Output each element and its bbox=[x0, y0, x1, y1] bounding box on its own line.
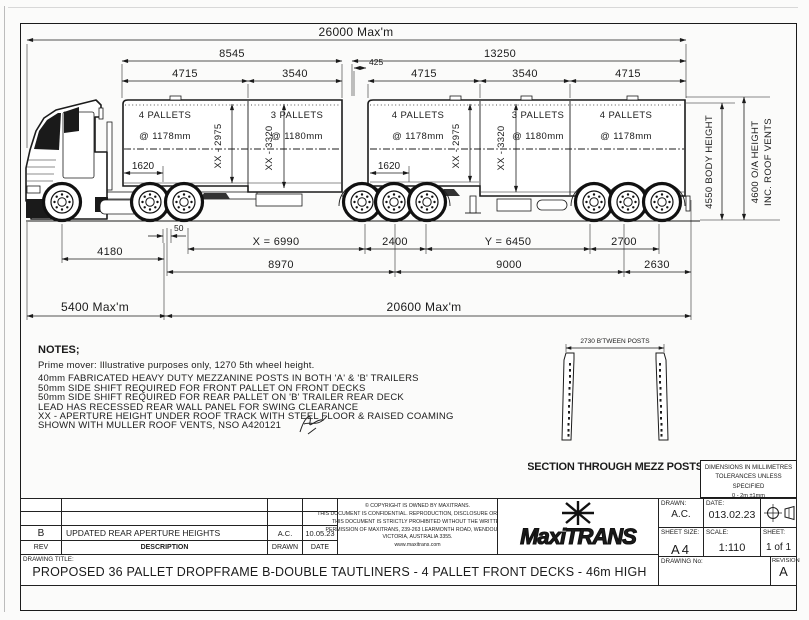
dim-2700: 2700 bbox=[611, 236, 637, 248]
rev-table-cell bbox=[20, 498, 62, 512]
section-caption: SECTION THROUGH MEZZ POSTS bbox=[528, 461, 703, 473]
logo-box: MaxiTRANS bbox=[497, 498, 659, 555]
drawing-title: PROPOSED 36 PALLET DROPFRAME B-DOUBLE TA… bbox=[32, 565, 646, 579]
rev-value: B bbox=[20, 525, 62, 541]
dim-b-length: 13250 bbox=[484, 48, 516, 60]
handwritten-mark bbox=[296, 410, 332, 436]
mezz-posts bbox=[562, 353, 668, 440]
pallet-pitch-a1: @ 1178mm bbox=[139, 131, 191, 142]
dim-oa-height-2: INC. ROOF VENTS bbox=[763, 118, 774, 206]
air-tank bbox=[537, 200, 567, 210]
dim-x: X = 6990 bbox=[253, 236, 300, 248]
dim-body-height: 4550 BODY HEIGHT bbox=[704, 115, 715, 209]
pallet-label-b2: 3 PALLETS bbox=[512, 110, 565, 121]
notes-heading: NOTES; bbox=[38, 344, 528, 356]
notes-block: NOTES; Prime mover: Illustrative purpose… bbox=[38, 344, 528, 431]
dim-b-rear: 4715 bbox=[615, 68, 641, 80]
projection-cell bbox=[760, 498, 797, 528]
scale-label: SCALE: bbox=[706, 529, 760, 536]
pallet-pitch-b1: @ 1178mm bbox=[392, 131, 444, 142]
date-cell: DATE: 013.02.23 bbox=[703, 498, 761, 528]
sheet-value: 1 of 1 bbox=[761, 542, 796, 553]
scale-cell: SCALE: 1:110 bbox=[703, 527, 761, 557]
rev-header-drawn: DRAWN bbox=[267, 540, 303, 555]
pallet-pitch-b3: @ 1178mm bbox=[600, 131, 652, 142]
date-value: 013.02.23 bbox=[704, 509, 760, 521]
drawing-no-label: DRAWING No: bbox=[661, 558, 703, 565]
aperture-a2: XX - 3320 bbox=[264, 126, 275, 171]
wheels bbox=[44, 184, 681, 221]
dim-2400: 2400 bbox=[382, 236, 408, 248]
logo-text: MaxiTRANS bbox=[520, 524, 637, 549]
sheet-label: SHEET: bbox=[763, 529, 796, 536]
dim-b-wheelbase: 9000 bbox=[496, 259, 522, 271]
dim-gap-425: 425 bbox=[369, 57, 383, 67]
main-drawing: 26000 Max'm 8545 13250 425 4715 3540 471… bbox=[0, 0, 809, 332]
sheet-size-cell: SHEET SIZE: A4 bbox=[658, 527, 704, 557]
tolerance-box: DIMENSIONS IN MILLIMETRES TOLERANCES UNL… bbox=[700, 460, 797, 498]
dim-b-mid: 3540 bbox=[512, 68, 538, 80]
rev-table-cell bbox=[61, 511, 268, 526]
dim-a-front: 4715 bbox=[172, 68, 198, 80]
rev-table-cell bbox=[302, 498, 338, 512]
dim-steer-to-drive: 4180 bbox=[97, 246, 123, 258]
dim-fifty: 50 bbox=[174, 223, 184, 233]
rev-description: UPDATED REAR APERTURE HEIGHTS bbox=[61, 525, 268, 541]
pallet-label-b3: 4 PALLETS bbox=[600, 110, 653, 121]
drawing-title-label: DRAWING TITLE: bbox=[23, 556, 74, 563]
tolerance-line: DIMENSIONS IN MILLIMETRES bbox=[701, 464, 796, 473]
toolbox bbox=[497, 199, 531, 211]
dim-lead-length: 8545 bbox=[219, 48, 245, 60]
rear-underrun bbox=[686, 196, 690, 211]
copyright-line: www.maxitrans.com bbox=[394, 542, 440, 550]
drawing-title-bar: DRAWING TITLE: PROPOSED 36 PALLET DROPFR… bbox=[20, 554, 659, 586]
copyright-box: © COPYRIGHT IS OWNED BY MAXITRANS. THIS … bbox=[337, 498, 498, 555]
dim-oa-height-1: 4600 O/A HEIGHT bbox=[750, 121, 761, 204]
note-line: Prime mover: Illustrative purposes only,… bbox=[38, 361, 528, 370]
copyright-line: © COPYRIGHT IS OWNED BY MAXITRANS. bbox=[365, 503, 470, 511]
aperture-b1: XX - 2975 bbox=[451, 124, 462, 169]
sheet-size-value: A4 bbox=[659, 542, 703, 557]
drawing-sheet: { "sheet": { "dims": { "overall_top": "2… bbox=[0, 0, 809, 620]
rev-header-date: DATE bbox=[302, 540, 338, 555]
aperture-b2: XX - 3320 bbox=[496, 126, 507, 171]
drawing-no-cell: DRAWING No: bbox=[658, 556, 771, 586]
dim-b-front: 4715 bbox=[411, 68, 437, 80]
drawn-cell: DRAWN: A.C. bbox=[658, 498, 704, 528]
copyright-line: THIS DOCUMENT IS CONFIDENTIAL. REPRODUCT… bbox=[317, 511, 518, 519]
sheet-cell: SHEET: 1 of 1 bbox=[760, 527, 797, 557]
mirror bbox=[99, 108, 103, 119]
rev-table-cell bbox=[61, 498, 268, 512]
pallet-label-a1: 4 PALLETS bbox=[139, 110, 192, 121]
logo-starburst bbox=[562, 501, 594, 525]
dim-combination-length: 20600 Max'm bbox=[387, 300, 462, 314]
dim-prime-mover-length: 5400 Max'm bbox=[61, 300, 129, 314]
rev-header-description: DESCRIPTION bbox=[61, 540, 268, 555]
dim-b-offset: 1620 bbox=[378, 161, 401, 172]
pallet-label-b1: 4 PALLETS bbox=[392, 110, 445, 121]
sheet-size-label: SHEET SIZE: bbox=[661, 529, 703, 536]
scale-value: 1:110 bbox=[704, 542, 760, 554]
rev-header-rev: REV bbox=[20, 540, 62, 555]
note-line: SHOWN WITH MULLER ROOF VENTS, NSO A42012… bbox=[38, 421, 528, 430]
pallet-pitch-b2: @ 1180mm bbox=[512, 131, 564, 142]
revision-value: A bbox=[771, 564, 796, 579]
rev-drawn: A.C. bbox=[267, 525, 303, 541]
pallet-pitch-a2: @ 1180mm bbox=[271, 131, 323, 142]
dim-rear-overhang: 2630 bbox=[644, 259, 670, 271]
landing-leg bbox=[470, 196, 476, 213]
dim-overall-length: 26000 Max'm bbox=[319, 25, 394, 39]
maxitrans-logo: MaxiTRANS bbox=[498, 499, 658, 554]
copyright-line: THIS DOCUMENT IS STRICTLY PROHIBITED WIT… bbox=[332, 519, 503, 527]
headlight bbox=[27, 186, 40, 193]
fifth-wheel bbox=[200, 193, 230, 199]
revision-cell: REVISION A bbox=[770, 556, 797, 586]
mezz-post-section: 2730 B'TWEEN POSTS SECTION THROUGH MEZZ … bbox=[528, 330, 738, 480]
rev-table-cell bbox=[20, 511, 62, 526]
tolerance-line: TOLERANCES UNLESS SPECIFIED bbox=[701, 473, 796, 492]
copyright-line: VICTORIA, AUSTRALIA 3355. bbox=[383, 534, 453, 542]
pallet-label-a2: 3 PALLETS bbox=[271, 110, 324, 121]
drawn-label: DRAWN: bbox=[661, 500, 703, 507]
rev-table-cell bbox=[267, 498, 303, 512]
dim-a-offset: 1620 bbox=[132, 161, 155, 172]
dim-y: Y = 6450 bbox=[485, 236, 532, 248]
aperture-a1: XX - 2975 bbox=[213, 124, 224, 169]
rev-table-cell bbox=[267, 511, 303, 526]
drawn-value: A.C. bbox=[659, 509, 703, 520]
dim-a-rear: 3540 bbox=[282, 68, 308, 80]
section-dim: 2730 B'TWEEN POSTS bbox=[580, 338, 650, 345]
copyright-line: PERMISSION OF MAXITRANS, 239-263 LEARMON… bbox=[326, 527, 510, 535]
date-label: DATE: bbox=[706, 500, 760, 507]
projection-symbol-icon bbox=[761, 500, 796, 526]
dim-lead-wheelbase: 8970 bbox=[268, 259, 294, 271]
toolbox bbox=[256, 194, 302, 206]
